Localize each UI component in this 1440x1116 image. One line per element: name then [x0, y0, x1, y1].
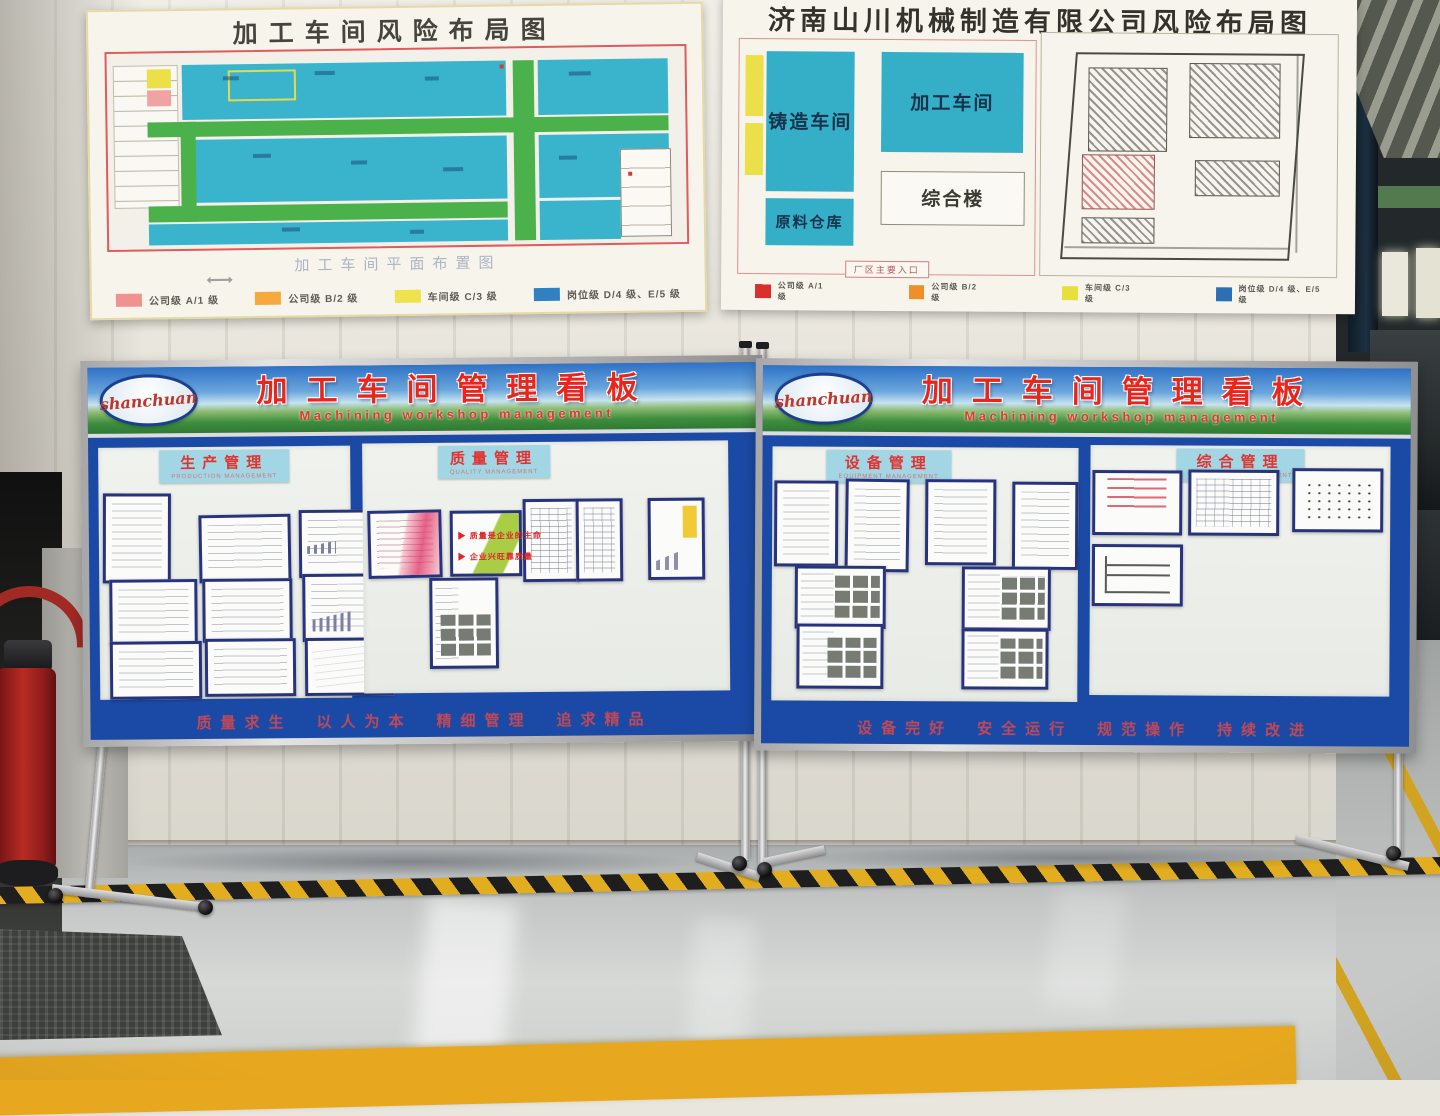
pinned-document — [1012, 482, 1078, 570]
pinned-document-photos — [795, 565, 886, 628]
pinned-document-chart — [648, 498, 706, 580]
block-machining-workshop: 加工车间 — [881, 52, 1024, 154]
map-label-mark — [559, 155, 577, 159]
pinned-document — [845, 478, 910, 572]
map-bay — [149, 219, 508, 246]
yellow-risk-strip — [745, 55, 763, 116]
legend-label: 岗位级 D/4 级、E/5 级 — [567, 285, 681, 302]
pinned-document — [109, 579, 198, 646]
leg-cap — [739, 341, 752, 348]
panel-production: 生产管理 PRODUCTION MANAGEMENT — [98, 446, 352, 700]
pinned-document-checklist — [1292, 468, 1383, 532]
workshop-floorplan-map — [104, 44, 689, 252]
panel-equipment: 设备管理 EQUIPMENT MANAGEMENT — [771, 446, 1078, 702]
board-shadow — [790, 845, 1370, 871]
pinned-document-red-text — [1092, 470, 1182, 535]
legend-swatch — [116, 294, 142, 307]
site-road — [1295, 54, 1298, 252]
poster-legend: 公司级 A/1 级 公司级 B/2 级 车间级 C/3 级 岗位级 D/4 级、… — [116, 285, 681, 308]
pinned-document-quality-slogan: ▶ 质量是企业的生命 ▶ 企业兴旺靠质量 — [450, 510, 523, 577]
legend-item: 公司级 B/2 级 — [909, 281, 989, 304]
legend-swatch — [755, 284, 771, 298]
legend-swatch — [909, 285, 925, 299]
legend-label: 岗位级 D/4 级、E/5 级 — [1238, 283, 1331, 306]
map-bay — [539, 200, 620, 240]
compass-icon — [207, 276, 233, 283]
caster-wheel — [1386, 846, 1401, 861]
bar-chart — [307, 540, 336, 554]
board-face: shanchuan 加工车间管理看板 Machining workshop ma… — [87, 362, 758, 740]
pinned-document-photos — [796, 623, 883, 688]
banner-titles: 加工车间管理看板 Machining workshop management — [197, 371, 755, 424]
site-building — [1195, 160, 1280, 196]
pinned-document-diagram — [1092, 544, 1183, 606]
block-raw-material-warehouse: 原料仓库 — [765, 198, 854, 245]
pinned-document — [205, 638, 297, 697]
kanban-board-left: shanchuan 加工车间管理看板 Machining workshop ma… — [80, 355, 765, 747]
red-text-lines — [1107, 478, 1166, 513]
board-body: 生产管理 PRODUCTION MANAGEMENT 质量管理 QUALITY … — [88, 432, 759, 740]
map-label-mark — [315, 70, 335, 74]
board-face: shanchuan 加工车间管理看板 Machining workshop ma… — [761, 365, 1411, 746]
map-label-mark — [443, 167, 463, 171]
yellow-highlight — [683, 506, 698, 538]
photo-grid — [835, 576, 879, 618]
legend-item: 车间级 C/3 级 — [1062, 282, 1142, 305]
section-header-quality: 质量管理 QUALITY MANAGEMENT — [438, 445, 551, 479]
map-red-dot — [500, 64, 504, 68]
quality-slogan-lines: ▶ 质量是企业的生命 ▶ 企业兴旺靠质量 — [457, 526, 542, 568]
board-title: 加工车间管理看板 — [197, 371, 715, 408]
kanban-board-right: shanchuan 加工车间管理看板 Machining workshop ma… — [754, 358, 1418, 753]
map-utility-rooms — [619, 148, 671, 237]
machine-green-panel — [1378, 186, 1440, 208]
bar-chart — [312, 610, 351, 631]
legend-label: 公司级 A/1 级 — [778, 280, 835, 302]
block-casting-workshop: 铸造车间 — [765, 51, 855, 192]
caster-wheel — [198, 900, 213, 915]
map-bay — [537, 58, 668, 115]
map-yellow-cell — [147, 69, 170, 89]
section-title: 质量管理 — [450, 447, 538, 469]
photo-grid — [440, 614, 491, 655]
pinned-document-table — [576, 498, 624, 581]
risk-layout-poster-left: 加工车间风险布局图 加工车间平面布置图 公司级 A/1 级 公司级 B/2 级 … — [86, 2, 707, 321]
map-label-mark — [425, 77, 439, 81]
shanchuan-logo: shanchuan — [775, 372, 873, 425]
entrance-label: 厂区主要入口 — [845, 261, 929, 279]
section-subtitle: PRODUCTION MANAGEMENT — [171, 473, 277, 480]
board-shadow — [120, 848, 700, 876]
photo-grid — [828, 637, 877, 677]
fire-extinguisher-base — [0, 860, 58, 886]
board-banner: shanchuan 加工车间管理看板 Machining workshop ma… — [763, 365, 1411, 438]
site-building-red — [1082, 154, 1155, 210]
risk-layout-poster-right: 济南山川机械制造有限公司风险布局图 铸造车间 加工车间 综合楼 原料仓库 厂区主… — [721, 0, 1357, 314]
pinned-document-photos — [961, 628, 1048, 689]
legend-item: 岗位级 D/4 级、E/5 级 — [534, 285, 681, 302]
site-building — [1189, 63, 1280, 138]
map-red-dot — [628, 172, 632, 176]
legend-label: 车间级 C/3 级 — [428, 288, 498, 304]
window-light — [1416, 248, 1440, 318]
photo-grid — [1000, 638, 1042, 679]
section-title: 设备管理 — [839, 452, 939, 474]
board-subtitle: Machining workshop management — [873, 408, 1371, 426]
window-light — [1382, 252, 1408, 316]
legend-swatch — [1216, 287, 1232, 301]
workshop-photo: { "posters": { "left": { "title": "加工车间风… — [0, 0, 1440, 1080]
legend-item: 公司级 A/1 级 — [116, 291, 219, 307]
block-office-building: 综合楼 — [881, 171, 1025, 225]
legend-label: 车间级 C/3 级 — [1085, 282, 1142, 304]
site-building — [1082, 217, 1155, 244]
pinned-document-photos — [962, 566, 1051, 630]
pinned-document — [774, 480, 838, 566]
yellow-risk-strip — [745, 123, 763, 175]
pinned-document-table — [1188, 470, 1279, 536]
pinned-document — [202, 578, 293, 643]
map-label-mark — [222, 76, 238, 80]
leg-cap — [756, 342, 769, 349]
legend-item: 车间级 C/3 级 — [395, 288, 498, 304]
banner-titles: 加工车间管理看板 Machining workshop management — [873, 375, 1411, 426]
legend-label: 公司级 B/2 级 — [288, 290, 358, 306]
section-header-production: 生产管理 PRODUCTION MANAGEMENT — [159, 449, 289, 483]
pinned-document-photos — [429, 577, 499, 669]
site-block-diagram: 铸造车间 加工车间 综合楼 原料仓库 厂区主要入口 — [737, 38, 1037, 276]
legend-item: 岗位级 D/4 级、E/5 级 — [1216, 283, 1331, 306]
legend-item: 公司级 B/2 级 — [255, 290, 358, 306]
map-aisle-vertical — [512, 60, 535, 241]
map-label-mark — [410, 230, 424, 234]
map-label-mark — [569, 71, 591, 75]
quality-line: ▶ 企业兴旺靠质量 — [458, 547, 542, 569]
map-label-mark — [282, 228, 300, 232]
panel-integrated: 综合管理 INTEGRATED MANAGEMENT — [1089, 445, 1390, 697]
board-slogan: 设备完好 安全运行 规范操作 持续改进 — [761, 716, 1409, 740]
caster-wheel — [48, 888, 63, 903]
map-label-mark — [252, 154, 270, 158]
legend-swatch — [395, 290, 421, 303]
legend-swatch — [534, 288, 560, 301]
legend-swatch — [255, 292, 281, 305]
photo-grid — [1001, 577, 1044, 620]
map-pink-cell — [147, 90, 170, 106]
board-banner: shanchuan 加工车间管理看板 Machining workshop ma… — [87, 362, 756, 438]
org-diagram-lines — [1105, 556, 1170, 593]
logo-text: shanchuan — [99, 387, 198, 414]
shanchuan-logo: shanchuan — [99, 374, 197, 427]
site-building — [1088, 67, 1168, 152]
poster-caption: 加工车间平面布置图 — [91, 249, 704, 279]
legend-item: 公司级 A/1 级 — [755, 280, 835, 303]
legend-label: 公司级 A/1 级 — [149, 291, 219, 307]
pinned-document — [198, 514, 291, 584]
map-label-mark — [351, 160, 367, 164]
legend-swatch — [1062, 286, 1078, 300]
fire-extinguisher — [0, 668, 56, 868]
bar-chart — [656, 550, 683, 570]
board-slogan: 质量求生 以人为本 精细管理 追求精品 — [90, 707, 758, 734]
pinned-document — [925, 479, 996, 565]
poster-legend: 公司级 A/1 级 公司级 B/2 级 车间级 C/3 级 岗位级 D/4 级、… — [755, 280, 1331, 306]
board-title: 加工车间管理看板 — [873, 375, 1371, 410]
site-plan-drawing — [1039, 32, 1339, 278]
section-subtitle: QUALITY MANAGEMENT — [450, 469, 538, 476]
legend-label: 公司级 B/2 级 — [931, 281, 988, 303]
quality-line: ▶ 质量是企业的生命 — [457, 526, 541, 548]
caster-wheel — [757, 862, 772, 877]
logo-text: shanchuan — [774, 386, 873, 411]
pinned-document — [103, 493, 171, 583]
caster-wheel — [732, 856, 747, 871]
map-highlight-box — [228, 69, 296, 101]
section-title: 生产管理 — [171, 451, 277, 473]
pinned-document-pink — [367, 509, 443, 579]
board-body: 设备管理 EQUIPMENT MANAGEMENT 综合管理 INTEGRATE… — [761, 435, 1411, 746]
panel-quality: 质量管理 QUALITY MANAGEMENT ▶ 质量是企业的生命 ▶ 企业兴… — [362, 440, 730, 693]
pinned-document — [110, 641, 203, 700]
